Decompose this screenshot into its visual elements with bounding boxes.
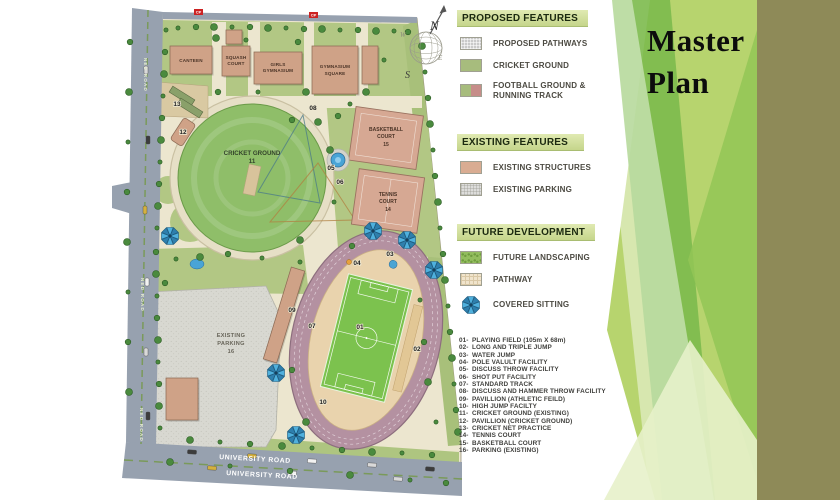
facility-item-12: 12-PAVILLION (CRICKET GROUND)	[459, 418, 606, 425]
pole-vault-marker	[347, 260, 352, 265]
tree-icon	[335, 113, 341, 119]
tree-icon	[438, 226, 442, 230]
tree-icon	[446, 304, 450, 308]
tree-icon	[127, 39, 133, 45]
svg-text:COURT: COURT	[377, 134, 395, 140]
tree-icon	[423, 70, 427, 74]
tree-icon	[161, 71, 168, 78]
covered-sitting-icon	[162, 228, 179, 245]
tree-icon	[158, 426, 162, 430]
tree-icon	[211, 24, 218, 31]
legend-item-cricket-ground: CRICKET GROUND	[460, 59, 629, 72]
svg-text:16: 16	[228, 349, 235, 355]
tree-icon	[421, 339, 427, 345]
facility-item-06: 06-SHOT PUT FACILITY	[459, 374, 606, 381]
map-number-07: 07	[308, 323, 316, 330]
facilities-list: 01-PLAYING FIELD (105m X 68m)02-LONG AND…	[459, 337, 606, 455]
cricket-ground-label: CRICKET GROUND	[224, 150, 281, 157]
tree-icon	[156, 381, 162, 387]
tree-icon	[295, 39, 301, 45]
facility-item-02: 02-LONG AND TRIPLE JUMP	[459, 344, 606, 351]
tree-icon	[126, 89, 133, 96]
map-number-05: 05	[327, 165, 335, 172]
tree-icon	[348, 102, 352, 106]
tree-icon	[303, 419, 310, 426]
tree-icon	[260, 256, 264, 260]
covered-sitting-icon	[288, 427, 305, 444]
tree-icon	[453, 407, 459, 413]
tree-icon	[289, 117, 295, 123]
tree-icon	[427, 121, 434, 128]
tree-icon	[176, 26, 180, 30]
tree-icon	[193, 24, 199, 30]
tree-icon	[310, 446, 314, 450]
map-number-12: 12	[179, 129, 187, 136]
tree-icon	[124, 239, 131, 246]
facility-item-04: 04-POLE VALULT FACILITY	[459, 359, 606, 366]
pathway-swatch	[460, 273, 482, 286]
tree-icon	[164, 28, 168, 32]
tree-icon	[392, 29, 396, 33]
legend-item-future-landscaping: FUTURE LANDSCAPING	[460, 251, 629, 264]
legend-header-future: FUTURE DEVELOPMENT	[457, 224, 595, 241]
svg-text:SQUASH: SQUASH	[226, 55, 247, 60]
facility-item-15: 15-BASKETBALL COURT	[459, 440, 606, 447]
tree-icon	[429, 452, 435, 458]
proposed-pathways-swatch	[460, 37, 482, 50]
legend-item-proposed-pathways: PROPOSED PATHWAYS	[460, 37, 629, 50]
tree-icon	[338, 28, 342, 32]
tree-icon	[155, 294, 159, 298]
tree-icon	[230, 25, 234, 29]
tree-icon	[156, 403, 163, 410]
tree-icon	[419, 43, 426, 50]
tree-icon	[363, 89, 370, 96]
tree-icon	[425, 95, 431, 101]
legend-header-proposed: PROPOSED FEATURES	[457, 10, 588, 27]
tree-icon	[155, 337, 162, 344]
facility-item-05: 05-DISCUSS THROW FACILITY	[459, 366, 606, 373]
facility-item-07: 07-STANDARD TRACK	[459, 381, 606, 388]
tree-icon	[213, 35, 220, 42]
tree-icon	[425, 379, 432, 386]
existing-structures-swatch	[460, 161, 482, 174]
left-road-label: NED ROAD	[143, 58, 148, 92]
car-icon	[146, 136, 150, 144]
tree-icon	[167, 459, 174, 466]
tree-icon	[435, 199, 442, 206]
tree-icon	[265, 25, 272, 32]
tree-icon	[225, 251, 231, 257]
covered-sitting-icon	[426, 262, 443, 279]
map-number-01: 01	[356, 324, 364, 331]
basketball-court-label: BASKETBALL	[369, 127, 403, 133]
tree-icon	[373, 28, 380, 35]
tree-icon	[382, 58, 386, 62]
svg-text:15: 15	[383, 142, 389, 148]
existing-parking-label: EXISTING	[217, 333, 246, 339]
map-number-03: 03	[386, 251, 394, 258]
tree-icon	[256, 90, 260, 94]
tree-icon	[158, 137, 165, 144]
tree-icon	[155, 226, 159, 230]
checkpoint-marker: CP	[309, 12, 318, 18]
legend-item-existing-parking: EXISTING PARKING	[460, 183, 629, 196]
facility-item-01: 01-PLAYING FIELD (105m X 68m)	[459, 337, 606, 344]
tree-icon	[162, 49, 168, 55]
tree-icon	[327, 147, 334, 154]
tree-icon	[449, 355, 456, 362]
car-icon	[307, 459, 316, 464]
svg-text:11: 11	[249, 158, 256, 165]
tree-icon	[298, 260, 302, 264]
small-building	[226, 30, 242, 44]
legend-panel: PROPOSED FEATURES PROPOSED PATHWAYS CRIC…	[457, 8, 629, 324]
existing-parking-area	[148, 286, 281, 447]
legend-item-covered-sitting: COVERED SITTING	[460, 295, 629, 315]
svg-text:SQUARE: SQUARE	[325, 71, 346, 76]
tree-icon	[244, 38, 248, 42]
side-junction	[112, 182, 132, 214]
tree-icon	[125, 339, 131, 345]
facility-item-11: 11-CRICKET GROUND (EXISTING)	[459, 410, 606, 417]
title-line-2: Plan	[647, 62, 745, 104]
tree-icon	[284, 26, 288, 30]
map-number-13: 13	[173, 101, 181, 108]
tree-icon	[418, 298, 422, 302]
tree-icon	[447, 329, 453, 335]
car-icon	[207, 466, 216, 471]
tree-icon	[432, 173, 438, 179]
tree-icon	[158, 160, 162, 164]
legend-item-football-track: FOOTBALL GROUND & RUNNING TRACK	[460, 81, 629, 100]
compass-south: S	[405, 70, 410, 81]
svg-text:PARKING: PARKING	[217, 341, 244, 347]
tree-icon	[126, 140, 130, 144]
tennis-court-label: TENNIS	[379, 192, 398, 198]
tree-icon	[349, 243, 355, 249]
tree-icon	[126, 389, 133, 396]
tree-icon	[161, 94, 165, 98]
tree-icon	[431, 148, 435, 152]
tree-icon	[347, 472, 354, 479]
tree-icon	[155, 203, 162, 210]
gymnasium-square-building	[312, 46, 358, 94]
covered-sitting-icon	[399, 232, 416, 249]
car-icon	[146, 412, 150, 420]
car-icon	[367, 463, 376, 468]
master-plan-poster: NED ROAD NED ROAD NED ROAD UNIVERSITY RO…	[0, 0, 840, 500]
car-icon	[143, 206, 147, 214]
tree-icon	[153, 249, 159, 255]
map-number-04: 04	[353, 260, 361, 267]
tree-icon	[452, 382, 456, 386]
tree-icon	[301, 26, 307, 32]
tree-icon	[153, 271, 160, 278]
tree-icon	[197, 254, 204, 261]
tree-icon	[405, 29, 411, 35]
facility-item-16: 16-PARKING (EXISTING)	[459, 447, 606, 454]
svg-text:GYMNASIUM: GYMNASIUM	[263, 68, 293, 73]
svg-text:GIRLS: GIRLS	[270, 62, 285, 67]
facility-item-14: 14-TENNIS COURT	[459, 432, 606, 439]
car-icon	[425, 467, 434, 472]
football-track-swatch	[460, 84, 482, 97]
checkpoint-marker: CP	[194, 9, 203, 15]
car-icon	[144, 348, 148, 356]
tree-icon	[159, 115, 165, 121]
car-icon	[393, 477, 402, 482]
legend-item-pathway: PATHWAY	[460, 273, 629, 286]
tree-icon	[400, 451, 404, 455]
legend-item-existing-structures: EXISTING STRUCTURES	[460, 161, 629, 174]
map-number-02: 02	[413, 346, 421, 353]
tree-icon	[303, 89, 310, 96]
annex-building	[362, 46, 378, 84]
existing-parking-swatch	[460, 183, 482, 196]
svg-text:CP: CP	[311, 13, 317, 18]
tree-icon	[228, 464, 232, 468]
tree-icon	[443, 480, 449, 486]
tree-icon	[319, 26, 326, 33]
tree-icon	[126, 290, 130, 294]
map-number-08: 08	[309, 105, 317, 112]
facility-item-10: 10-HIGH JUMP FACILTY	[459, 403, 606, 410]
compass-east: E	[437, 54, 443, 62]
tree-icon	[355, 27, 361, 33]
parking-building	[166, 378, 198, 420]
facility-item-08: 08-DISCUSS AND HAMMER THROW FACILITY	[459, 388, 606, 395]
facility-item-03: 03-WATER JUMP	[459, 352, 606, 359]
map-number-06: 06	[336, 179, 344, 186]
svg-text:COURT: COURT	[379, 199, 397, 205]
svg-text:CP: CP	[196, 10, 202, 15]
cricket-ground-swatch	[460, 59, 482, 72]
page-title: Master Plan	[647, 20, 745, 104]
tree-icon	[289, 367, 295, 373]
tree-icon	[247, 441, 253, 447]
canteen-label: CANTEEN	[179, 58, 203, 63]
tree-icon	[315, 119, 322, 126]
pond	[190, 259, 204, 269]
tree-icon	[215, 89, 221, 95]
compass-north: N	[429, 18, 440, 33]
tree-icon	[287, 468, 293, 474]
facility-item-09: 09-PAVILLION (ATHLETIC FEILD)	[459, 396, 606, 403]
covered-sitting-icon	[365, 223, 382, 240]
car-icon	[187, 450, 196, 455]
tree-icon	[440, 251, 446, 257]
tree-icon	[332, 200, 336, 204]
tree-icon	[247, 24, 253, 30]
tree-icon	[434, 420, 438, 424]
future-landscaping-swatch	[460, 251, 482, 264]
facility-item-13: 13-CRICKET NET PRACTICE	[459, 425, 606, 432]
svg-text:GYMNASIUM: GYMNASIUM	[320, 64, 350, 69]
tree-icon	[124, 189, 130, 195]
covered-sitting-icon	[460, 295, 482, 315]
map-number-10: 10	[319, 399, 327, 406]
tree-icon	[279, 443, 286, 450]
tree-icon	[369, 449, 376, 456]
tree-icon	[174, 257, 178, 261]
cricket-net-practice	[156, 82, 208, 118]
tree-icon	[442, 277, 449, 284]
tree-icon	[162, 280, 168, 286]
tree-icon	[408, 478, 412, 482]
covered-sitting-icon	[268, 365, 285, 382]
tree-icon	[156, 360, 160, 364]
svg-text:14: 14	[385, 207, 391, 213]
tree-icon	[297, 237, 304, 244]
map-number-09: 09	[288, 307, 296, 314]
legend-header-existing: EXISTING FEATURES	[457, 134, 584, 151]
svg-text:COURT: COURT	[227, 61, 244, 66]
tree-icon	[187, 437, 194, 444]
tree-icon	[339, 447, 345, 453]
left-road-label: NED ROAD	[139, 408, 144, 442]
left-road-label: NED ROAD	[140, 278, 145, 312]
tree-icon	[218, 440, 222, 444]
title-line-1: Master	[647, 20, 745, 62]
tree-icon	[154, 315, 160, 321]
tree-icon	[156, 181, 162, 187]
